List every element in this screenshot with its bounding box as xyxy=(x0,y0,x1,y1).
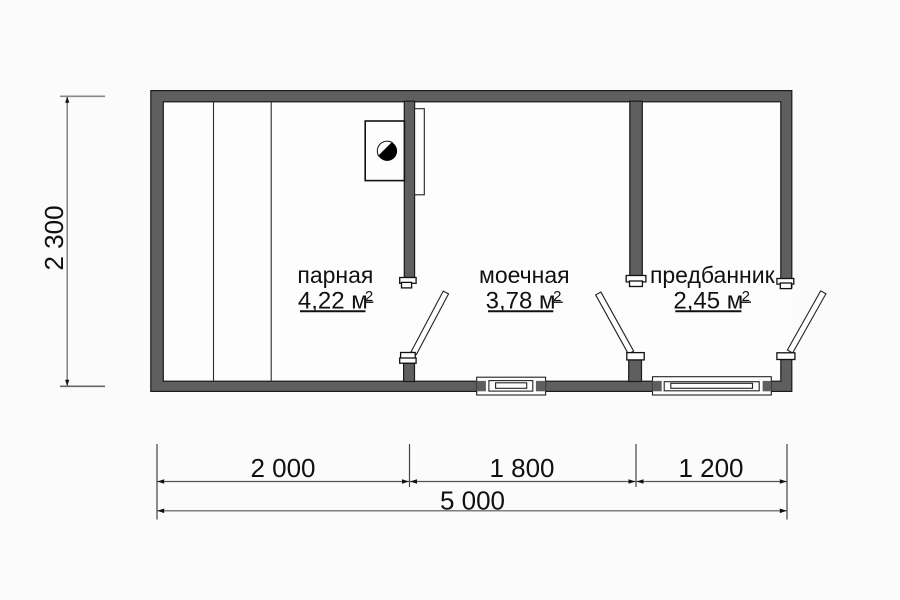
svg-text:предбанник: предбанник xyxy=(650,262,776,288)
svg-text:5 000: 5 000 xyxy=(440,486,505,516)
svg-text:1 800: 1 800 xyxy=(489,453,554,483)
svg-text:1 200: 1 200 xyxy=(678,453,743,483)
svg-text:2 300: 2 300 xyxy=(39,205,69,270)
svg-text:2 000: 2 000 xyxy=(250,453,315,483)
svg-text:моечная: моечная xyxy=(479,262,570,288)
svg-text:парная: парная xyxy=(297,262,373,288)
